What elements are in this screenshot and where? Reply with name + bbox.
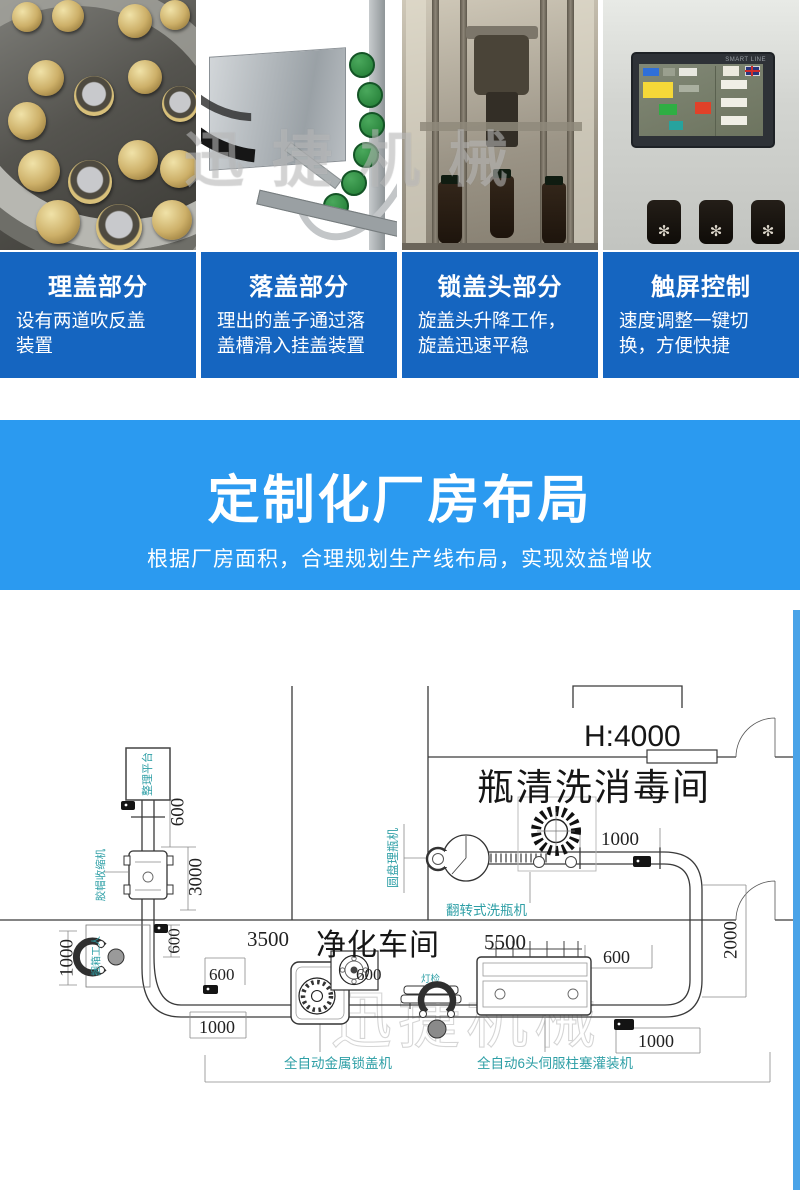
dim-1000-wash: 1000 — [601, 829, 639, 850]
dim-3500: 3500 — [247, 927, 289, 951]
dim-600-right: 600 — [603, 947, 630, 967]
photo-cap-chute — [201, 0, 397, 250]
dim-1000-botleft: 1000 — [199, 1017, 235, 1037]
dim-600-mid: 600 — [356, 965, 382, 984]
shrink-label: 胶帽收缩机 — [94, 848, 107, 901]
gold-cap — [52, 0, 84, 32]
room-clean-label: 净化车间 — [316, 929, 440, 962]
gold-cap — [160, 0, 190, 30]
packing-worker — [76, 925, 150, 987]
card-capping-head: 锁盖头部分 旋盖头升降工作， 旋盖迅速平稳 — [402, 252, 598, 378]
uk-flag-stripe — [751, 66, 753, 76]
section-banner: 定制化厂房布局 根据厂房面积，合理规划生产线布局，实现效益增收 — [0, 420, 800, 590]
bottle-cap — [493, 169, 511, 178]
gold-cap — [118, 140, 158, 180]
bottle-cap — [545, 176, 563, 185]
disc-unscrambler — [427, 835, 489, 881]
product-detail-page: SMART LINE ✻ ✻ ✻ 迅捷机械 理盖部分 — [0, 0, 800, 1190]
screen-field — [721, 80, 747, 89]
factory-floor-plan: 迅捷机械 整理平台 胶帽收缩机 — [0, 600, 800, 1190]
photo-capping-head — [402, 0, 598, 250]
dim-2000: 2000 — [721, 921, 742, 959]
dim-1000-left: 1000 — [57, 939, 78, 977]
gold-cap-open — [162, 86, 196, 122]
green-cap — [359, 112, 385, 138]
door-arcs — [736, 718, 775, 920]
capper-label: 全自动金属锁盖机 — [284, 1055, 392, 1071]
speed-knob: ✻ — [699, 200, 733, 244]
screen-field — [721, 116, 747, 125]
card-desc: 旋盖头升降工作， 旋盖迅速平稳 — [402, 308, 598, 358]
conveyor-edge — [402, 243, 598, 250]
dim-5500: 5500 — [484, 930, 526, 954]
gold-cap — [12, 2, 42, 32]
gold-cap — [18, 150, 60, 192]
card-desc: 速度调整一键切 换，方便快捷 — [603, 308, 799, 358]
gold-cap — [36, 200, 80, 244]
gold-cap — [152, 200, 192, 240]
green-cap — [357, 82, 383, 108]
height-label: H:4000 — [584, 720, 681, 753]
screen-button-gray — [663, 68, 675, 76]
gold-cap — [118, 4, 152, 38]
bottle — [542, 183, 566, 245]
green-cap — [353, 142, 379, 168]
card-desc: 理出的盖子通过落 盖槽滑入挂盖装置 — [201, 308, 397, 358]
card-title: 锁盖头部分 — [402, 267, 598, 302]
green-cap — [341, 170, 367, 196]
photo-cap-sorter — [0, 0, 196, 250]
speed-knob: ✻ — [751, 200, 785, 244]
capping-head-upper — [474, 35, 529, 95]
dim-1000-botright: 1000 — [638, 1031, 674, 1051]
washer-label: 翻转式洗瓶机 — [446, 903, 527, 918]
screen-field — [679, 68, 697, 76]
dim-600-elbow: 600 — [209, 965, 235, 984]
gold-cap-open — [74, 76, 114, 116]
screen-button-teal — [669, 121, 683, 130]
card-title: 落盖部分 — [201, 267, 397, 302]
filler-label: 全自动6头伺服柱塞灌装机 — [477, 1055, 634, 1071]
room-wash-label: 瓶清洗消毒间 — [477, 767, 711, 808]
screen-button-green — [659, 104, 677, 115]
card-touch-control: 触屏控制 速度调整一键切 换，方便快捷 — [603, 252, 799, 378]
bottle — [438, 182, 462, 244]
bottle-cap — [441, 175, 459, 184]
screen-divider — [715, 66, 716, 136]
gold-cap — [28, 60, 64, 96]
screen-button-red — [695, 102, 711, 114]
capping-head-lower — [486, 92, 518, 147]
banner-title: 定制化厂房布局 — [0, 458, 800, 533]
bottle-washer — [518, 797, 596, 871]
screen-label — [679, 85, 699, 92]
gold-cap — [160, 150, 196, 188]
disc-label: 圆盘理瓶机 — [385, 828, 400, 888]
photo-touch-panel: SMART LINE ✻ ✻ ✻ — [603, 0, 799, 250]
gold-cap — [8, 102, 46, 140]
gold-cap-open — [68, 160, 112, 204]
gold-cap — [128, 60, 162, 94]
screen-field — [721, 98, 747, 107]
speed-knob: ✻ — [647, 200, 681, 244]
screen-field — [723, 66, 739, 76]
card-cap-drop: 落盖部分 理出的盖子通过落 盖槽滑入挂盖装置 — [201, 252, 397, 378]
feature-cards: 理盖部分 设有两道吹反盖 装置 落盖部分 理出的盖子通过落 盖槽滑入挂盖装置 锁… — [0, 252, 800, 378]
packer-label: 捆箱工人 — [90, 936, 103, 976]
ceiling-bracket — [573, 686, 682, 708]
hmi-brand-text: SMART LINE — [725, 57, 766, 63]
cross-beam — [420, 122, 582, 131]
card-title: 触屏控制 — [603, 267, 799, 302]
section-frame-edge — [793, 610, 800, 1190]
dim-600-wall: 600 — [165, 928, 184, 954]
photo-strip: SMART LINE ✻ ✻ ✻ — [0, 0, 800, 250]
banner-subtitle: 根据厂房面积，合理规划生产线布局，实现效益增收 — [0, 543, 800, 573]
green-cap — [349, 52, 375, 78]
platform-label: 整理平台 — [140, 752, 154, 796]
dim-600-top: 600 — [168, 798, 189, 827]
card-cap-sorting: 理盖部分 设有两道吹反盖 装置 — [0, 252, 196, 378]
gold-cap-open — [96, 204, 142, 250]
card-title: 理盖部分 — [0, 267, 196, 302]
bottle — [490, 176, 514, 238]
dim-3000: 3000 — [186, 858, 207, 896]
card-desc: 设有两道吹反盖 装置 — [0, 308, 196, 358]
screen-button-blue — [643, 68, 659, 76]
shrink-machine — [124, 851, 173, 899]
screen-button-yellow — [643, 82, 673, 98]
